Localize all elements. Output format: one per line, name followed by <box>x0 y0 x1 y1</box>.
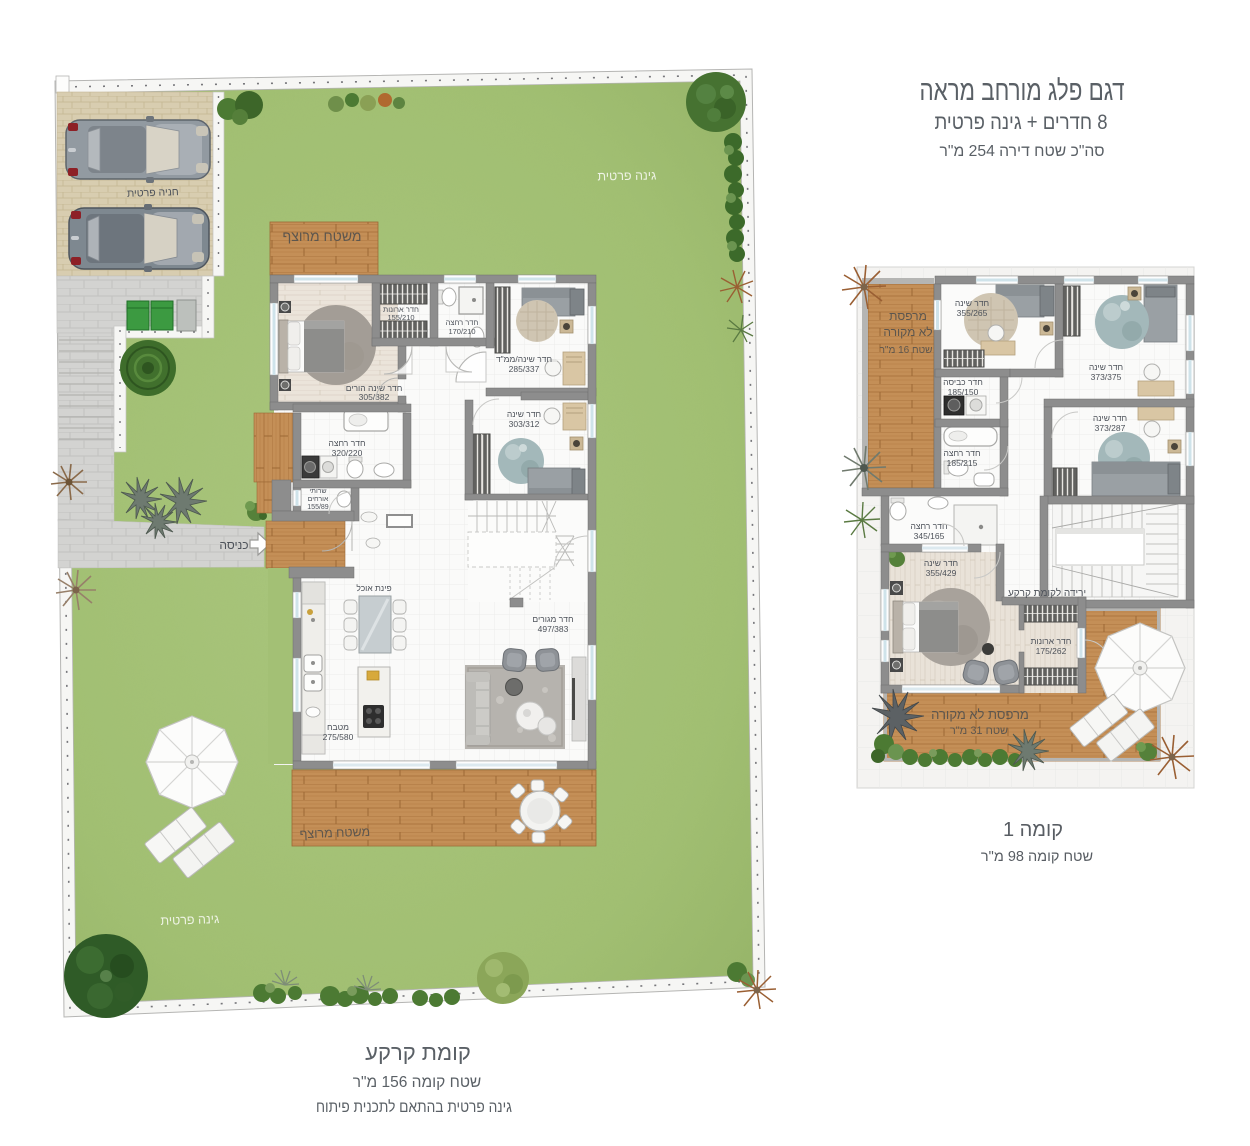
svg-text:185/215: 185/215 <box>947 458 978 468</box>
svg-text:משטח מרוצף: משטח מרוצף <box>282 228 361 244</box>
svg-text:שרותי: שרותי <box>309 488 326 495</box>
svg-text:מרפסת לא מקורה: מרפסת לא מקורה <box>931 707 1029 722</box>
svg-text:497/383: 497/383 <box>538 624 569 634</box>
svg-text:קומת קרקע: קומת קרקע <box>365 1040 471 1065</box>
svg-text:355/429: 355/429 <box>926 568 957 578</box>
svg-text:שטח קומה 156 מ"ר: שטח קומה 156 מ"ר <box>353 1074 482 1091</box>
svg-text:גינה פרטית בהתאם לתכנית פיתוח: גינה פרטית בהתאם לתכנית פיתוח <box>316 1099 512 1116</box>
svg-text:חדר כביסה: חדר כביסה <box>943 377 983 387</box>
svg-text:185/150: 185/150 <box>948 387 979 397</box>
svg-text:חדר רחצה: חדר רחצה <box>446 318 479 327</box>
svg-text:285/337: 285/337 <box>509 364 540 374</box>
svg-text:345/165: 345/165 <box>914 531 945 541</box>
svg-text:155/210: 155/210 <box>387 313 414 322</box>
svg-text:משטח מרוצף: משטח מרוצף <box>299 825 370 841</box>
svg-text:שטח קומה 98 מ"ר: שטח קומה 98 מ"ר <box>981 849 1093 865</box>
svg-text:חדר רחצה: חדר רחצה <box>910 521 947 531</box>
svg-text:303/312: 303/312 <box>509 419 540 429</box>
svg-text:חדר שינה: חדר שינה <box>924 558 958 568</box>
svg-text:שטח 16 מ"ר: שטח 16 מ"ר <box>880 345 933 356</box>
svg-text:שטח 31 מ"ר: שטח 31 מ"ר <box>950 725 1008 737</box>
svg-text:חדר שינה: חדר שינה <box>1089 362 1123 372</box>
svg-text:‏8 חדרים + גינה פרטית: ‏8 חדרים + גינה פרטית <box>935 111 1108 134</box>
svg-text:320/220: 320/220 <box>332 448 363 458</box>
svg-text:373/287: 373/287 <box>1095 423 1126 433</box>
svg-text:חדר ארונות: חדר ארונות <box>1031 636 1072 646</box>
svg-text:חדר שינה: חדר שינה <box>1093 413 1127 423</box>
svg-text:305/382: 305/382 <box>359 392 390 402</box>
svg-text:חדר רחצה: חדר רחצה <box>943 448 980 458</box>
svg-text:חדר שינה: חדר שינה <box>955 298 989 308</box>
svg-text:373/375: 373/375 <box>1091 372 1122 382</box>
svg-text:מטבח: מטבח <box>327 722 349 732</box>
svg-text:ירידה לקומת קרקע: ירידה לקומת קרקע <box>1008 587 1086 599</box>
svg-text:קומה 1: קומה 1 <box>1003 819 1063 841</box>
svg-text:355/265: 355/265 <box>957 308 988 318</box>
svg-text:גינה פרטית: גינה פרטית <box>597 168 656 183</box>
svg-text:דגם פלג מורחב מראה: דגם פלג מורחב מראה <box>920 75 1125 106</box>
svg-text:חדר שינה: חדר שינה <box>507 409 541 419</box>
svg-text:170/210: 170/210 <box>448 327 475 336</box>
svg-text:חדר שינה/ממ"ד: חדר שינה/ממ"ד <box>496 354 552 364</box>
svg-text:155/89: 155/89 <box>307 504 329 511</box>
svg-text:מרפסת: מרפסת <box>889 309 927 323</box>
svg-text:חדר מגורים: חדר מגורים <box>532 614 573 624</box>
svg-text:כניסה: כניסה <box>219 538 248 552</box>
svg-text:חניה פרטית: חניה פרטית <box>127 186 179 200</box>
svg-text:275/580: 275/580 <box>323 732 354 742</box>
svg-text:גינה פרטית: גינה פרטית <box>160 912 219 928</box>
svg-text:חדר רחצה: חדר רחצה <box>328 438 365 448</box>
svg-text:לא מקורה: לא מקורה <box>883 325 932 339</box>
svg-text:אורחים: אורחים <box>308 496 329 503</box>
svg-text:175/262: 175/262 <box>1036 646 1067 656</box>
svg-text:פינת אוכל: פינת אוכל <box>356 583 391 593</box>
svg-text:סה"כ שטח דירה 254 מ"ר: סה"כ שטח דירה 254 מ"ר <box>940 143 1105 160</box>
